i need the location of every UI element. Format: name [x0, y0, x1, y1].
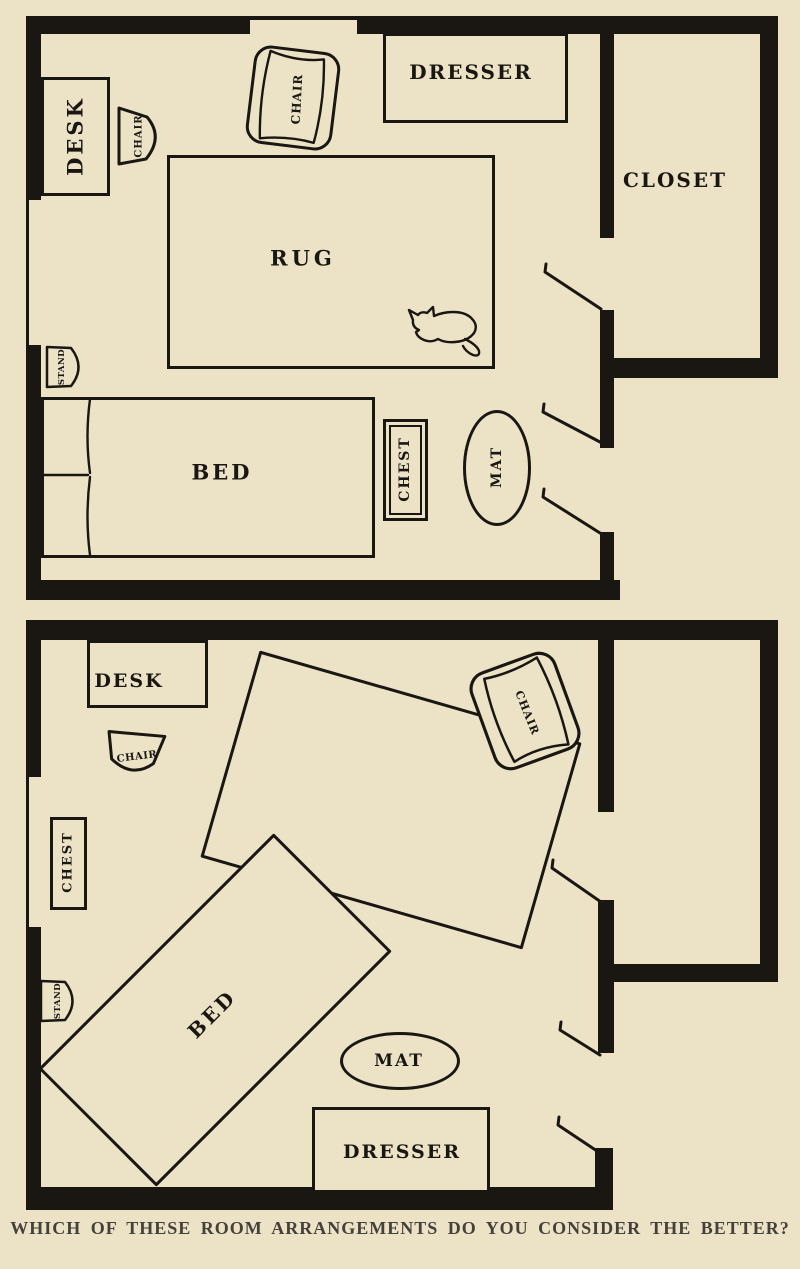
wall-right-low — [600, 532, 614, 580]
desk-label: DESK — [63, 96, 88, 176]
closet-door-swing — [552, 860, 601, 902]
wall-right — [760, 620, 778, 982]
mat-label: MAT — [374, 1051, 424, 1071]
bed-label: BED — [192, 460, 253, 485]
dresser-label: DRESSER — [409, 60, 533, 84]
window-opening — [29, 777, 41, 927]
closet-door-swing — [545, 264, 601, 309]
closet-wall-bottom — [613, 358, 778, 378]
entry-door-swing — [558, 1117, 597, 1151]
chest-label: CHEST — [397, 436, 413, 502]
desk-label: DESK — [94, 670, 163, 692]
wall-right-low — [595, 1148, 613, 1187]
wall-right-mid — [600, 310, 614, 448]
chair-label: CHAIR — [116, 749, 158, 765]
wall-right — [760, 16, 778, 378]
wall-bottom — [26, 580, 620, 600]
scanned-book-page: { "caption": "WHICH OF THESE ROOM ARRANG… — [0, 0, 800, 1269]
stand-label: STAND — [57, 349, 67, 385]
entry-door-swing — [543, 489, 600, 533]
closet-label: CLOSET — [623, 168, 727, 192]
chest-label: CHEST — [61, 831, 76, 893]
window-opening — [29, 200, 41, 345]
closet-wall-bottom — [613, 964, 778, 982]
chair-label: CHAIR — [512, 689, 542, 737]
rug-label: RUG — [270, 246, 336, 271]
entry-door-swing — [560, 1022, 600, 1055]
wall-top — [26, 620, 778, 640]
mat-label: MAT — [489, 446, 505, 488]
chair-label: CHAIR — [134, 114, 145, 157]
window-opening — [250, 20, 357, 34]
wall-right-mid — [598, 900, 614, 1053]
bed-label: BED — [183, 985, 241, 1043]
entry-door-swing — [543, 404, 600, 442]
chair-label: CHAIR — [289, 73, 306, 124]
wall-top — [26, 16, 778, 34]
closet-wall-left — [600, 34, 614, 238]
dresser-label: DRESSER — [343, 1141, 461, 1163]
page-caption: WHICH OF THESE ROOM ARRANGEMENTS DO YOU … — [0, 1218, 800, 1239]
stand-label: STAND — [53, 983, 63, 1019]
closet-wall-left — [598, 640, 614, 812]
